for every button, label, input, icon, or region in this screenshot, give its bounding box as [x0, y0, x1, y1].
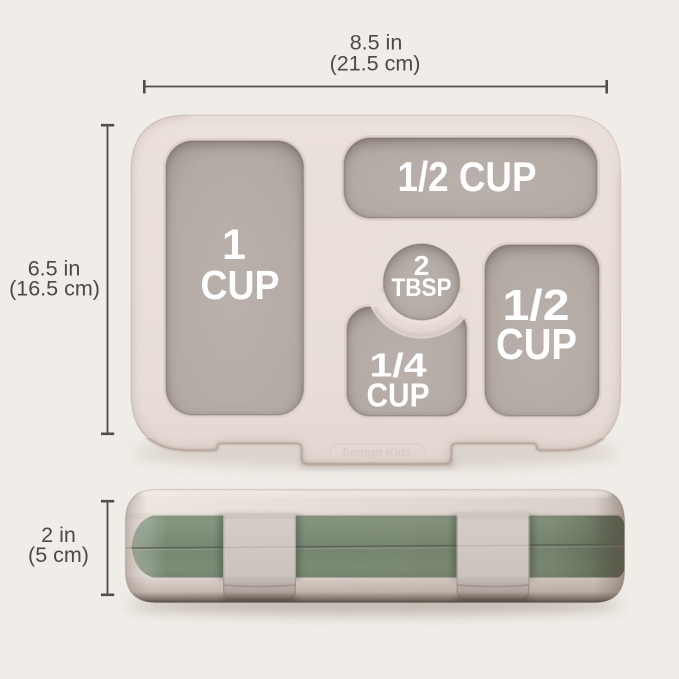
svg-text:(16.5 cm): (16.5 cm): [9, 277, 100, 301]
svg-text:TBSP: TBSP: [392, 274, 452, 302]
svg-text:1/2 CUP: 1/2 CUP: [398, 153, 537, 200]
svg-text:(21.5 cm): (21.5 cm): [330, 52, 421, 76]
svg-text:CUP: CUP: [496, 320, 577, 369]
svg-text:(5 cm): (5 cm): [28, 543, 89, 567]
svg-text:CUP: CUP: [201, 262, 280, 308]
svg-text:bentgo Kids: bentgo Kids: [342, 446, 412, 460]
svg-text:CUP: CUP: [367, 377, 430, 414]
